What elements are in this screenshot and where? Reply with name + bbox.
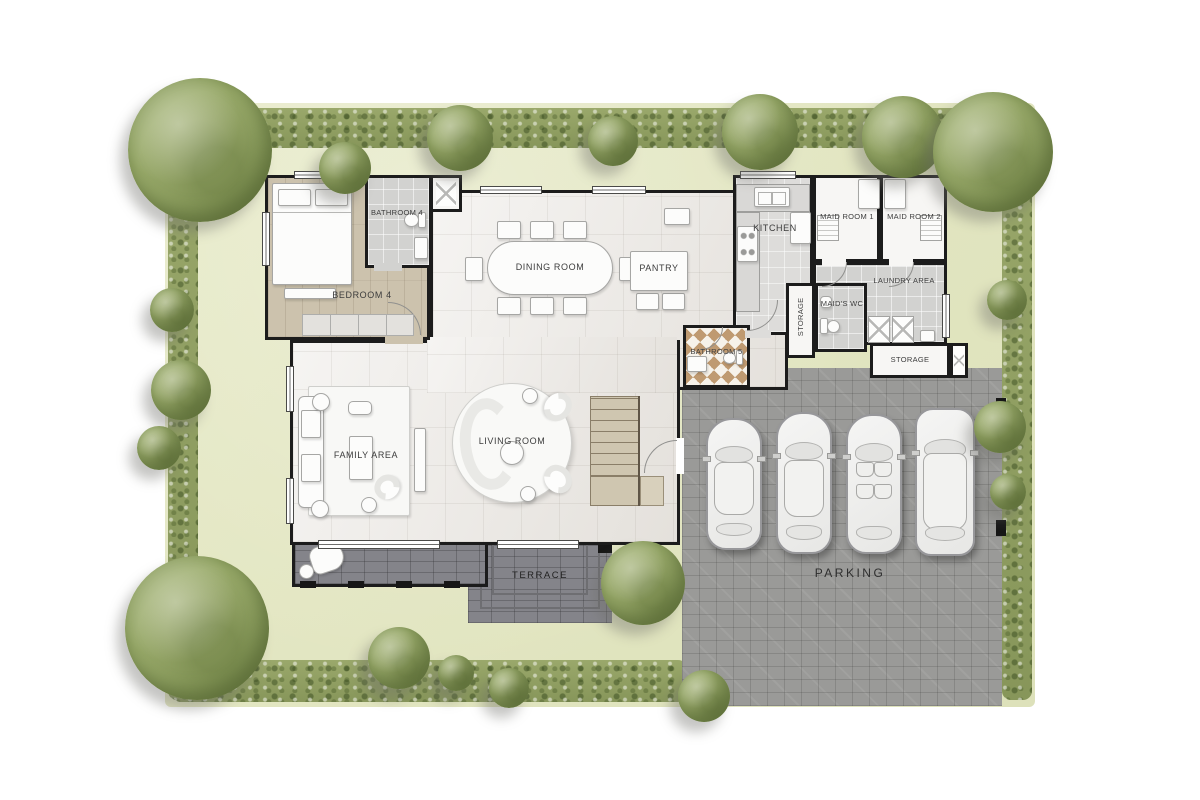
room-label-living: LIVING ROOM (462, 436, 562, 448)
car-rear-window (716, 523, 752, 537)
sink-vanity (414, 237, 428, 259)
kitchen-sink-icon (754, 187, 790, 207)
tree (933, 92, 1053, 212)
dining-chair (465, 257, 483, 281)
car-seat (856, 484, 874, 499)
tree (974, 401, 1026, 453)
wall-post (444, 581, 460, 588)
car-suv (915, 408, 975, 556)
pouf (311, 500, 329, 518)
room-label-parking: PARKING (790, 566, 910, 582)
car-mirror (911, 450, 920, 456)
car-sedan (776, 412, 832, 554)
car-rear-window (786, 525, 822, 539)
door-opening (385, 336, 423, 344)
car-roof (923, 453, 967, 530)
car-windshield (715, 446, 753, 463)
tree (137, 426, 181, 470)
car-seat (874, 484, 892, 499)
stool (520, 486, 536, 502)
hall-cabinet (664, 208, 690, 225)
shower-icon (436, 181, 456, 206)
room-label-terrace: TERRACE (480, 570, 600, 582)
tree (368, 627, 430, 689)
wall-post (300, 581, 316, 588)
sliding-door (497, 540, 579, 549)
pillow (278, 189, 311, 206)
tree (987, 280, 1027, 320)
car-mirror (757, 456, 766, 462)
stair-apron (640, 476, 664, 506)
stool (361, 497, 377, 513)
dining-chair (563, 221, 587, 239)
room-label-family: FAMILY AREA (316, 450, 416, 462)
room-label-dining: DINING ROOM (487, 262, 613, 274)
car-rear-window (925, 526, 965, 541)
car-roof (714, 462, 754, 515)
car-windshield (855, 443, 893, 461)
room-label-kitchen: KITCHEN (737, 223, 813, 235)
room-label-storage-garage: STORAGE (872, 355, 948, 365)
car-trunk (856, 526, 892, 540)
dining-chair (563, 297, 587, 315)
window (942, 294, 950, 338)
dining-chair (530, 297, 554, 315)
tree (722, 94, 798, 170)
sliding-door (318, 540, 440, 549)
door-opening (374, 263, 402, 271)
sofa-cushion (301, 410, 321, 438)
wall-post (396, 581, 412, 588)
car-convertible (846, 414, 902, 554)
car-seat (856, 462, 874, 477)
car-mirror (827, 453, 836, 459)
room-label-bathroom5: BATHROOM 5 (684, 347, 749, 357)
tree (601, 541, 685, 625)
closet-shelves-icon (954, 347, 964, 374)
dining-chair (530, 221, 554, 239)
side-table (299, 564, 314, 579)
window (480, 186, 542, 194)
tree (678, 670, 730, 722)
stair-landing (590, 476, 640, 506)
sink-basin (758, 192, 772, 205)
window (262, 212, 270, 266)
car-mirror (970, 450, 979, 456)
car-sedan (706, 418, 762, 550)
tree (128, 78, 272, 222)
blanket-line (273, 212, 351, 213)
car-seat (874, 462, 892, 477)
tree (427, 105, 493, 171)
window (286, 366, 294, 412)
car-windshield (785, 442, 823, 461)
tree (862, 96, 944, 178)
room-label-storage-hall: STORAGE (796, 288, 806, 346)
pantry-chair (636, 293, 659, 310)
room-label-maid1: MAID ROOM 1 (816, 212, 878, 222)
closet (950, 343, 968, 378)
side-table (348, 401, 372, 415)
car-roof (784, 460, 824, 517)
room-label-laundry: LAUNDRY AREA (868, 276, 940, 286)
room-label-bedroom4: BEDROOM 4 (302, 290, 422, 302)
tree (319, 142, 371, 194)
floor-patch (427, 337, 677, 393)
door-opening (676, 438, 684, 474)
car-mirror (702, 456, 711, 462)
window (592, 186, 646, 194)
tree (990, 474, 1026, 510)
shower-stall (430, 175, 462, 212)
pantry-chair (662, 293, 685, 310)
room-label-maids-wc: MAID'S WC (817, 299, 867, 309)
car-mirror (842, 454, 851, 460)
tree (125, 556, 269, 700)
window (286, 478, 294, 524)
toilet-icon (827, 320, 840, 333)
tree (489, 668, 529, 708)
dining-chair (497, 297, 521, 315)
bed (884, 179, 906, 209)
car-mirror (897, 454, 906, 460)
car-mirror (772, 453, 781, 459)
tree (588, 116, 638, 166)
dining-chair (497, 221, 521, 239)
laundry-sink (920, 330, 935, 342)
window (740, 171, 796, 179)
room-label-maid2: MAID ROOM 2 (883, 212, 945, 222)
stool (522, 388, 538, 404)
washing-machine-icon (868, 316, 890, 343)
sink-vanity (687, 356, 707, 372)
washing-machine-icon (892, 316, 914, 343)
tree (150, 288, 194, 332)
floor-plan-canvas: PARKING TERRACE (0, 0, 1200, 800)
stair-railing (638, 396, 640, 506)
sink-basin (772, 192, 786, 205)
wall-post (348, 581, 364, 588)
pouf (312, 393, 330, 411)
tree (438, 655, 474, 691)
bed (858, 179, 880, 209)
tree (151, 360, 211, 420)
room-label-pantry: PANTRY (630, 263, 688, 275)
wall-post (996, 520, 1006, 536)
door-opening (745, 330, 771, 338)
staircase (590, 396, 640, 476)
wardrobe (302, 314, 414, 336)
room-label-bathroom4: BATHROOM 4 (352, 208, 442, 218)
